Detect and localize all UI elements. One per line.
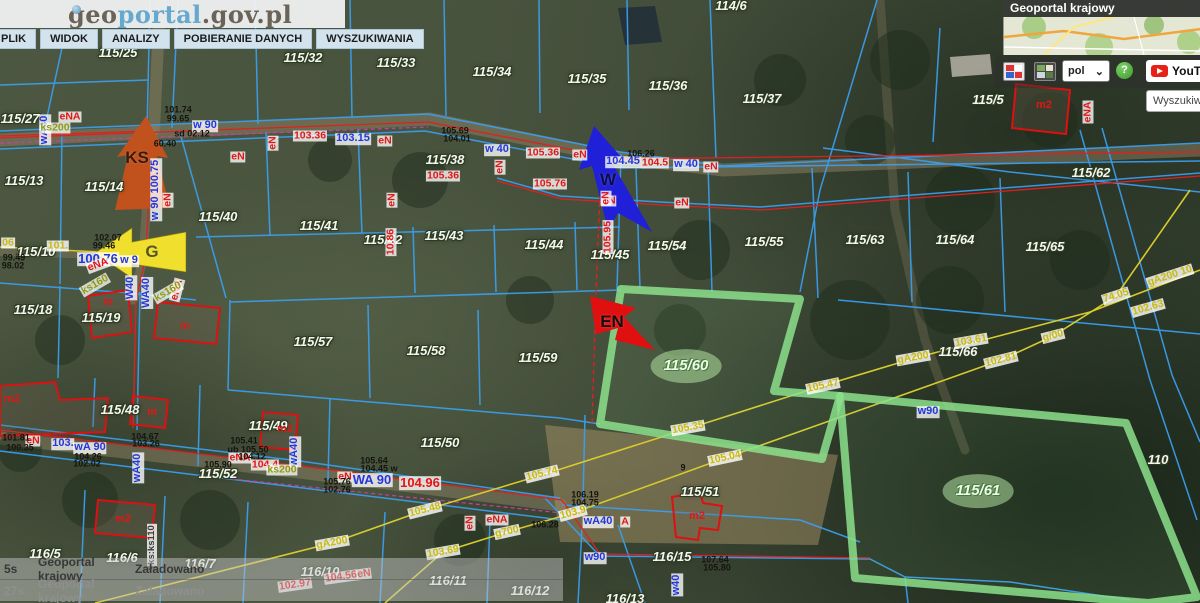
power-line-label: 104.96 bbox=[399, 476, 441, 490]
elevation-label: 105.80 bbox=[703, 563, 731, 572]
building-label: m2 bbox=[1036, 100, 1052, 112]
power-line-label: eN bbox=[600, 190, 611, 205]
parcel-label: 115/32 bbox=[284, 51, 323, 65]
menu-pobieranie-danych[interactable]: POBIERANIE DANYCH bbox=[174, 29, 313, 49]
logo-portal: portal bbox=[118, 0, 202, 29]
elevation-label: 100.35 bbox=[6, 443, 34, 452]
building-label: m bbox=[147, 407, 157, 419]
parcel-label: 115/44 bbox=[525, 238, 564, 252]
elevation-label: 102.76 bbox=[323, 485, 351, 494]
overview-panel-title: Geoportal krajowy bbox=[1003, 0, 1200, 17]
youtube-button[interactable]: YouTube bbox=[1146, 60, 1200, 82]
highlighted-parcel-label: 115/61 bbox=[943, 474, 1014, 508]
parcel-label: 115/27 bbox=[1, 112, 40, 126]
youtube-play-icon bbox=[1151, 65, 1168, 77]
parcel-label: 115/13 bbox=[5, 174, 44, 188]
parcel-label: 115/5 bbox=[972, 93, 1004, 107]
power-line-label: eN bbox=[377, 135, 392, 146]
direction-arrow-label: EN bbox=[600, 313, 624, 331]
menu-bar: PLIKWIDOKANALIZYPOBIERANIE DANYCHWYSZUKI… bbox=[0, 29, 424, 49]
power-line-label: eN bbox=[674, 197, 689, 208]
power-line-label: eN bbox=[464, 515, 475, 530]
parcel-label: 115/65 bbox=[1026, 240, 1065, 254]
parcel-label: 115/54 bbox=[648, 239, 687, 253]
water-line-label: wA40 bbox=[583, 516, 614, 528]
sewer-line-label: ks200 bbox=[266, 464, 297, 475]
elevation-label: 105.90 bbox=[204, 460, 232, 469]
power-line-label: 10.86 bbox=[385, 228, 396, 256]
elevation-label: 104.12 bbox=[238, 452, 266, 461]
parcel-label: 115/57 bbox=[294, 335, 333, 349]
highlighted-parcel-label: 115/60 bbox=[651, 349, 722, 383]
power-line-label: 105.95 bbox=[602, 220, 613, 254]
status-status: Załadowano bbox=[135, 584, 204, 598]
power-line-label: eN bbox=[267, 135, 278, 150]
help-button[interactable]: ? bbox=[1116, 62, 1133, 79]
parcel-label: 115/48 bbox=[101, 403, 140, 417]
gas-line-label: 105.74 bbox=[524, 465, 560, 484]
power-line-label: eN bbox=[162, 192, 173, 207]
power-line-label: A bbox=[620, 516, 630, 527]
elevation-label: 104.01 bbox=[443, 134, 471, 143]
logo[interactable]: geoportal.gov.pl bbox=[68, 0, 292, 29]
gas-line-label: 105.48 bbox=[407, 501, 443, 520]
parcel-label: 115/42 bbox=[364, 233, 403, 247]
direction-arrow-label: KS bbox=[125, 149, 149, 167]
power-line-label: eNA bbox=[1082, 100, 1093, 123]
gas-line-label: 102.81 bbox=[983, 351, 1019, 370]
power-line-label: eN bbox=[386, 192, 397, 207]
parcel-label: 115/34 bbox=[473, 65, 512, 79]
gas-line-label: 74.05 bbox=[1101, 286, 1131, 305]
power-line-label: eN bbox=[703, 161, 718, 172]
menu-widok[interactable]: WIDOK bbox=[40, 29, 98, 49]
gas-line-label: 105.04 bbox=[707, 449, 743, 467]
overview-minimap[interactable] bbox=[1003, 17, 1200, 55]
sewer-line-label: ks160 bbox=[79, 272, 112, 297]
gas-line-label: g700 bbox=[493, 524, 521, 540]
building-label: m bbox=[180, 321, 190, 333]
parcel-label: 115/38 bbox=[426, 153, 465, 167]
power-line-label: 105.36 bbox=[426, 170, 460, 181]
building-label: m2 bbox=[277, 424, 293, 436]
elevation-label: 106.28 bbox=[531, 520, 559, 529]
water-line-label: wA40 bbox=[132, 453, 144, 484]
parcel-label: 115/33 bbox=[377, 56, 416, 70]
direction-arrow-label: W bbox=[600, 171, 616, 189]
elevation-label: 60.40 bbox=[154, 139, 177, 148]
menu-analizy[interactable]: ANALIZY bbox=[102, 29, 170, 49]
parcel-label: 115/51 bbox=[681, 485, 720, 499]
water-line-label: 103. bbox=[51, 438, 74, 450]
elevation-label: 98.02 bbox=[2, 261, 25, 270]
water-line-label: w90 bbox=[917, 406, 940, 418]
basemap-switch-button[interactable] bbox=[1034, 62, 1056, 81]
logo-suffix: .gov.pl bbox=[202, 0, 292, 29]
parcel-label: 115/63 bbox=[846, 233, 885, 247]
elevation-label: 104.45 w bbox=[360, 464, 397, 473]
elevation-label: 106.26 bbox=[627, 149, 655, 158]
status-time: 5s bbox=[0, 562, 38, 576]
gas-line-label: 06 bbox=[1, 237, 15, 248]
elevation-label: 104.75 bbox=[571, 498, 599, 507]
parcel-label: 115/37 bbox=[743, 92, 782, 106]
parcel-label: 115/36 bbox=[649, 79, 688, 93]
power-line-label: 104.5 bbox=[641, 157, 669, 168]
elevation-label: 99.46 bbox=[93, 241, 116, 250]
parcel-label: 116/15 bbox=[653, 550, 692, 564]
gas-line-label: 102.63 bbox=[1130, 298, 1166, 318]
parcel-label: 115/18 bbox=[14, 303, 53, 317]
gas-line-label: 105.47 bbox=[805, 377, 841, 395]
building-label: m bbox=[103, 297, 113, 309]
direction-arrow-label: G bbox=[145, 243, 158, 261]
language-value: pol bbox=[1068, 65, 1085, 77]
parcel-label: 115/35 bbox=[568, 72, 607, 86]
power-line-label: 103.36 bbox=[293, 130, 327, 141]
building-label: m2 bbox=[4, 394, 20, 406]
composition-switch-button[interactable] bbox=[1003, 62, 1025, 81]
power-line-label: eN bbox=[494, 159, 505, 174]
parcel-label: 110 bbox=[1148, 453, 1169, 467]
water-line-label: w40 bbox=[671, 574, 683, 597]
elevation-label: 99.65 bbox=[167, 114, 190, 123]
gas-line-label: 105.35 bbox=[670, 420, 706, 437]
logo-globe-icon bbox=[72, 5, 81, 14]
elevation-label: sd 02.12 bbox=[174, 129, 210, 138]
geoportal-app: 115/25115/27115/32115/33115/34115/35115/… bbox=[0, 0, 1200, 603]
sewer-line-label: ks200 bbox=[39, 122, 70, 133]
water-line-label: w 9 bbox=[119, 255, 139, 267]
elevation-label: 102.02 bbox=[73, 459, 101, 468]
parcel-label: 115/64 bbox=[936, 233, 975, 247]
map-labels: 115/25115/27115/32115/33115/34115/35115/… bbox=[0, 0, 1200, 603]
parcel-label: 115/41 bbox=[300, 219, 339, 233]
parcel-label: 115/50 bbox=[421, 436, 460, 450]
parcel-label: 114/6 bbox=[715, 0, 747, 13]
chevron-down-icon: ⌄ bbox=[1095, 65, 1104, 78]
power-line-label: eN bbox=[230, 151, 245, 162]
parcel-label: 115/14 bbox=[85, 180, 124, 194]
parcel-label: 115/58 bbox=[407, 344, 446, 358]
gas-line-label: gA200 10 bbox=[1145, 263, 1194, 288]
basemap-icon bbox=[1037, 65, 1053, 78]
gas-line-label: 101. bbox=[47, 240, 69, 251]
power-line-label: eNA bbox=[485, 514, 508, 525]
water-line-label: w 40 bbox=[673, 159, 699, 171]
status-status: Załadowano bbox=[135, 562, 204, 576]
menu-wyszukiwania[interactable]: WYSZUKIWANIA bbox=[316, 29, 423, 49]
minimap-graphic bbox=[1004, 17, 1200, 55]
water-line-label: 103.15 bbox=[335, 133, 371, 145]
status-row: 27sGeoportal krajowyZaładowano bbox=[0, 580, 563, 601]
status-bar: 5sGeoportal krajowyZaładowano27sGeoporta… bbox=[0, 558, 563, 601]
elevation-label: 9 bbox=[680, 463, 685, 472]
water-line-label: w 40 bbox=[484, 144, 510, 156]
gas-line-label: gA200 bbox=[315, 535, 350, 552]
building-label: m2 bbox=[689, 511, 705, 523]
status-source: Geoportal krajowy bbox=[38, 577, 135, 603]
youtube-label: YouTube bbox=[1172, 64, 1200, 78]
building-label: m2 bbox=[115, 514, 131, 526]
water-line-label: w 90 100.75 bbox=[150, 159, 162, 222]
flag-icon bbox=[1006, 65, 1022, 78]
parcel-label: 115/19 bbox=[82, 311, 121, 325]
parcel-label: 115/43 bbox=[425, 229, 464, 243]
menu-plik[interactable]: PLIK bbox=[0, 29, 36, 49]
gas-line-label: gA200 bbox=[896, 350, 931, 367]
elevation-label: 103.26 bbox=[132, 439, 160, 448]
language-select[interactable]: pol ⌄ bbox=[1062, 60, 1110, 82]
parcel-label: 115/40 bbox=[199, 210, 238, 224]
parcel-label: 116/13 bbox=[606, 592, 645, 603]
parcel-label: 115/62 bbox=[1072, 166, 1111, 180]
status-time: 27s bbox=[0, 584, 38, 598]
power-line-label: eN bbox=[572, 149, 587, 160]
search-box[interactable]: Wyszukiw bbox=[1146, 90, 1200, 112]
parcel-label: 115/59 bbox=[519, 351, 558, 365]
water-line-label: W40 bbox=[125, 276, 137, 301]
gas-line-label: g/00 bbox=[1041, 328, 1066, 344]
water-line-label: WA 90 bbox=[352, 473, 393, 487]
water-line-label: w90 bbox=[584, 552, 607, 564]
power-line-label: 105.76 bbox=[533, 178, 567, 189]
power-line-label: 105.36 bbox=[526, 147, 560, 158]
parcel-label: 115/55 bbox=[745, 235, 784, 249]
